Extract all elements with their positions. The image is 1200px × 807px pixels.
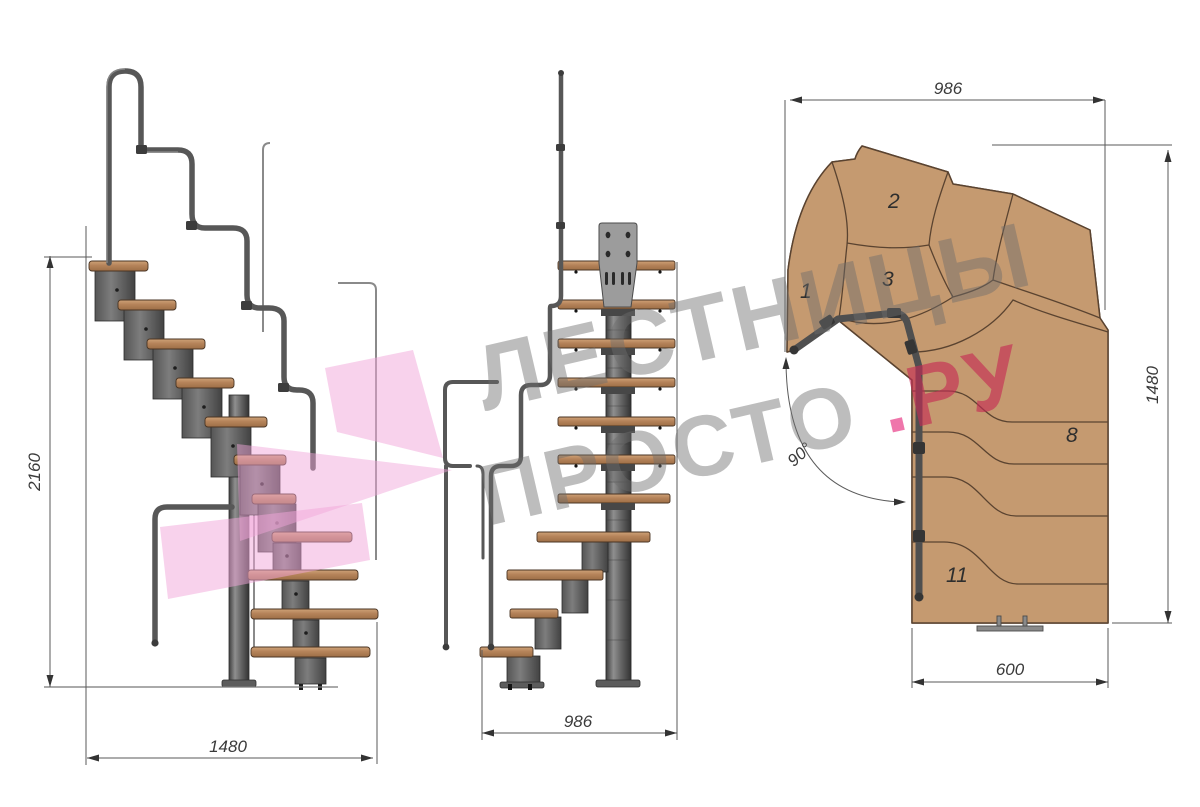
side-width-dimension: 1480 [209,737,247,756]
side-height-dimension: 2160 [25,453,44,492]
plan-step-label-1: 1 [800,280,812,303]
plan-turn-angle-label: 90° [784,439,816,470]
plan-step-label-3: 3 [882,268,894,291]
front-view: 986 [443,70,677,740]
side-view: 2160 1480 [25,69,378,765]
plan-step-label-11: 11 [946,564,968,587]
staircase-drawing: 2160 1480 [0,0,1200,807]
plan-step-label-2: 2 [887,190,900,213]
front-width-dimension: 986 [564,712,593,731]
plan-right-height-dimension: 1480 [1143,366,1162,404]
plan-bottom-width-dimension: 600 [996,660,1025,679]
drawing-canvas: 2160 1480 [0,0,1200,807]
plan-step-label-8: 8 [1066,424,1078,447]
plan-top-width-dimension: 986 [934,79,963,98]
plan-view: 1 2 3 8 11 [783,79,1173,688]
